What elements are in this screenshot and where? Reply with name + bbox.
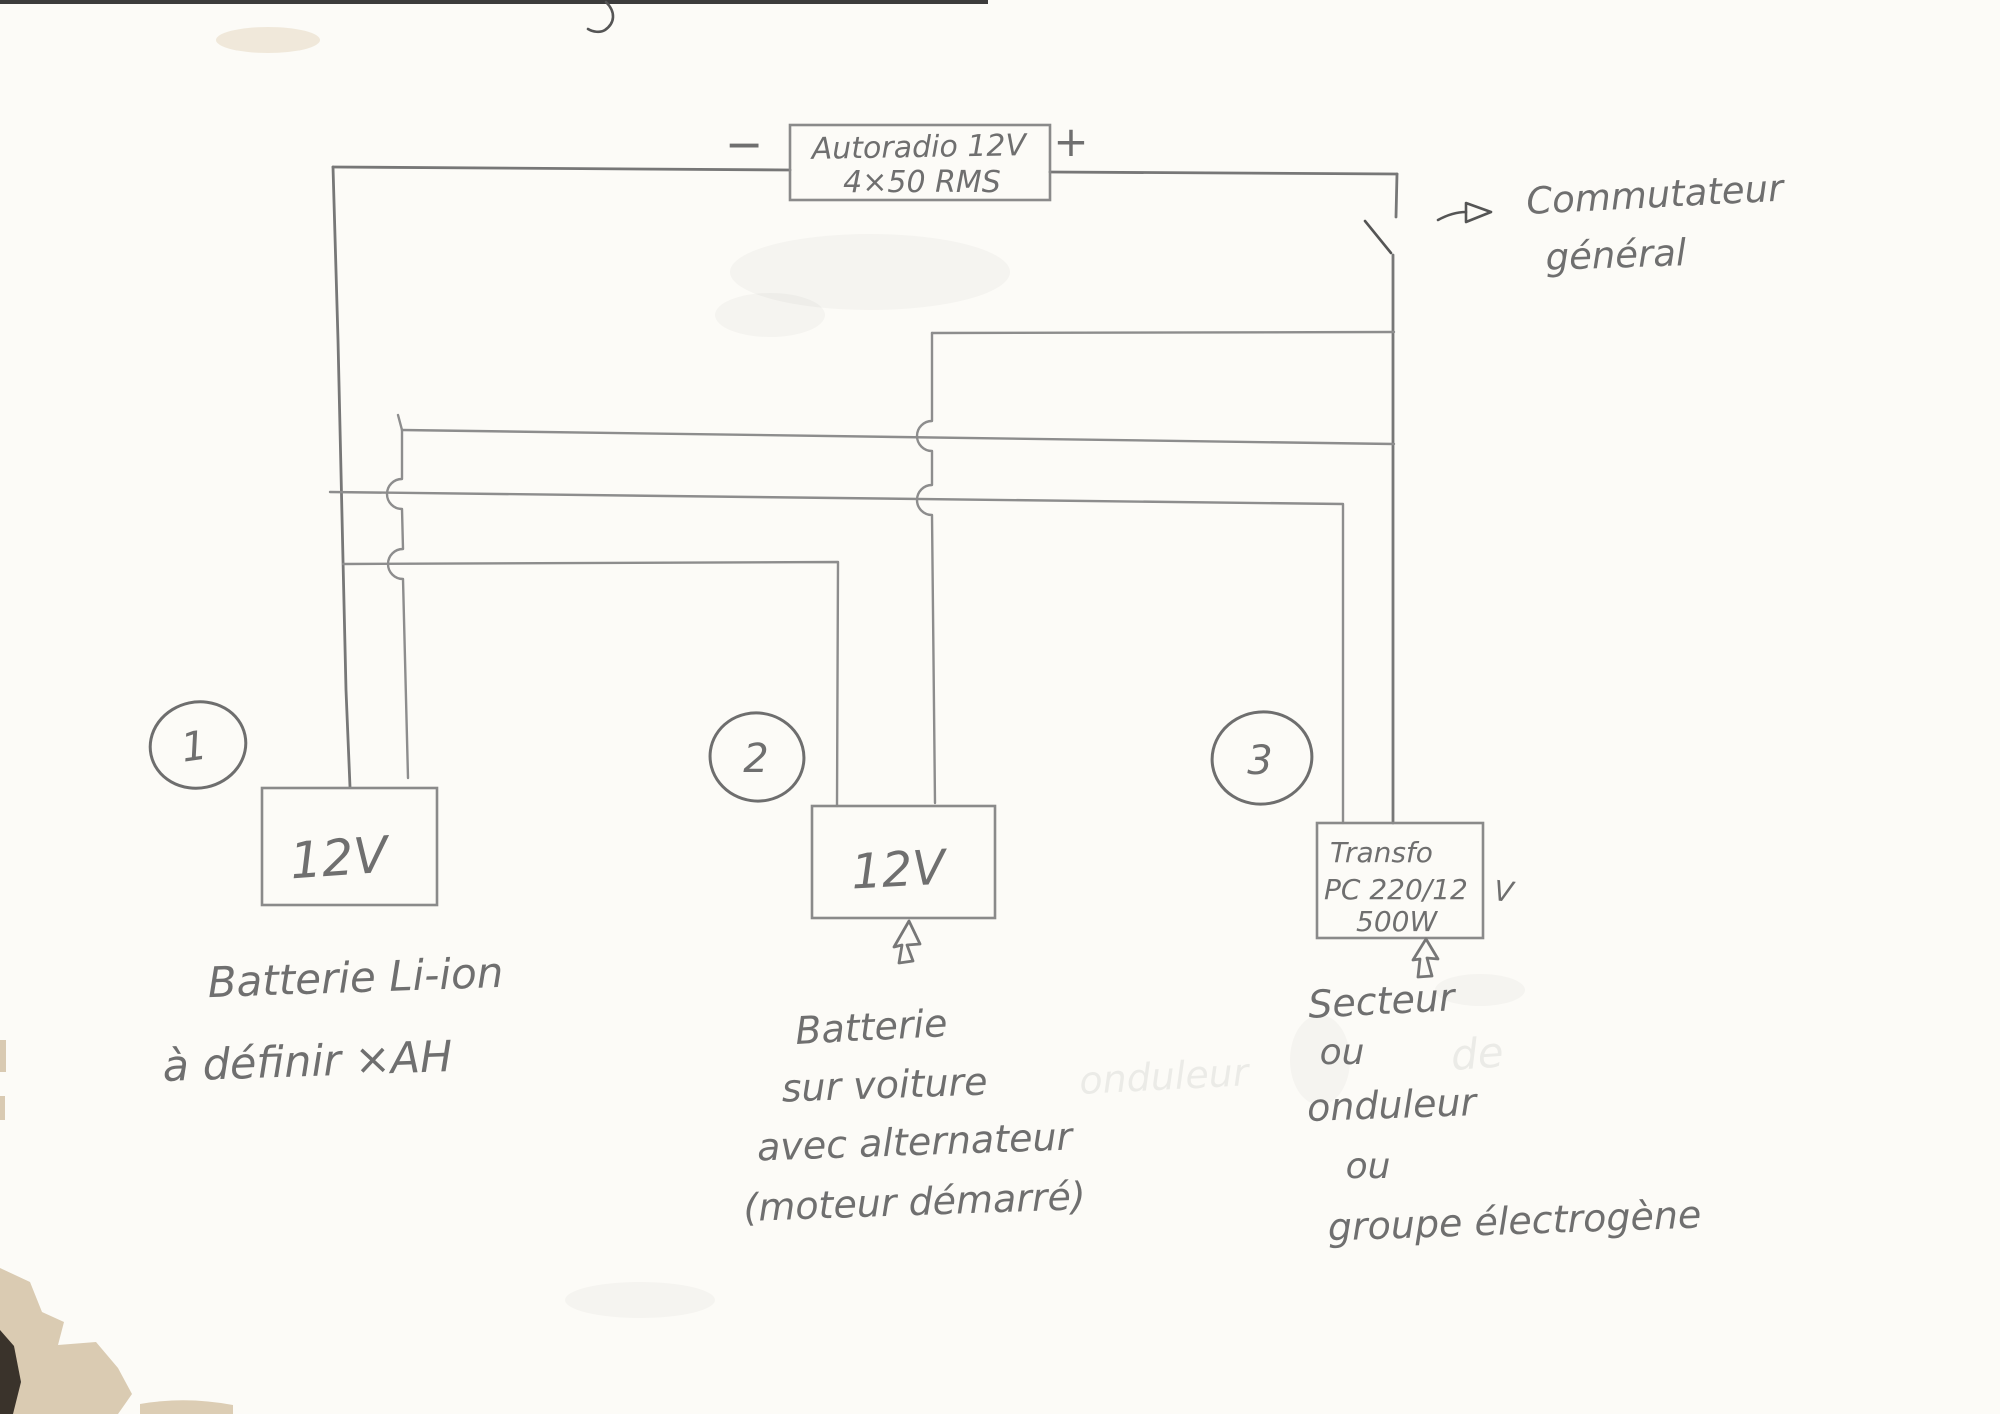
wire-positive-to-source1-with-hops bbox=[387, 430, 408, 778]
source3-caption-line1: Secteur bbox=[1307, 975, 1458, 1027]
switch-upper-stub bbox=[1396, 174, 1397, 217]
positive-terminal-sign: + bbox=[1053, 117, 1088, 166]
paper-stain-edge bbox=[0, 1096, 5, 1120]
erased-ghost-word1: onduleur bbox=[1078, 1050, 1252, 1103]
pencil-smudge bbox=[715, 293, 825, 337]
paper-stain-edge bbox=[0, 1040, 6, 1072]
wiring-diagram: Autoradio 12V 4×50 RMS − + Commutateur g… bbox=[0, 0, 2000, 1414]
scan-edge-artifact bbox=[0, 0, 988, 4]
head-unit-label-line1: Autoradio 12V bbox=[809, 128, 1028, 167]
wire-corner-tick bbox=[398, 415, 402, 430]
switch-label-line1: Commutateur bbox=[1525, 166, 1787, 223]
source3-unit-outside: V bbox=[1492, 874, 1516, 909]
callout-arrow-shaft bbox=[1438, 212, 1466, 220]
source2-caption-line2: sur voiture bbox=[781, 1059, 988, 1110]
pencil-smudge bbox=[565, 1282, 715, 1318]
source2-caption-line1: Batterie bbox=[794, 1001, 948, 1053]
paper-stain-bottom bbox=[140, 1400, 233, 1414]
source2-number: 2 bbox=[743, 736, 768, 782]
wire-positive-crossbar bbox=[932, 332, 1394, 333]
source2-caption-line3: avec alternateur bbox=[756, 1114, 1075, 1169]
wire-negative-vertical bbox=[333, 167, 350, 787]
source1-box-label: 12V bbox=[288, 825, 393, 890]
source2-caption-line4: (moteur démarré) bbox=[743, 1174, 1087, 1230]
callout-arrow-head bbox=[1466, 203, 1491, 222]
source3-number: 3 bbox=[1247, 738, 1272, 784]
source3-box-line3: 500W bbox=[1356, 905, 1438, 938]
erased-ghost-word2: de bbox=[1449, 1027, 1505, 1080]
source3-box-line2: PC 220/12 bbox=[1324, 873, 1468, 906]
wire-positive-top bbox=[1050, 172, 1397, 174]
scanned-paper-sheet: Autoradio 12V 4×50 RMS − + Commutateur g… bbox=[0, 0, 2000, 1414]
source3-caption-line2: ou bbox=[1320, 1032, 1365, 1073]
paper-stain-small bbox=[216, 27, 320, 53]
up-arrow-icon bbox=[894, 921, 920, 963]
pen-stroke-mark bbox=[588, 2, 613, 32]
head-unit-label-line2: 4×50 RMS bbox=[843, 165, 1001, 200]
source3-caption-line3: onduleur bbox=[1306, 1080, 1479, 1130]
source3-caption-line5: groupe électrogène bbox=[1327, 1193, 1702, 1250]
source3-caption-line4: ou bbox=[1346, 1146, 1391, 1187]
wire-negative-top bbox=[333, 167, 790, 170]
source1-caption-line1: Batterie Li-ion bbox=[207, 948, 504, 1007]
up-arrow-icon bbox=[1413, 939, 1438, 977]
source1-number: 1 bbox=[178, 723, 210, 772]
switch-label-line2: général bbox=[1545, 231, 1688, 279]
wire-positive-branch-source1 bbox=[402, 430, 1394, 444]
wire-positive-to-source2-with-hops bbox=[917, 333, 935, 803]
source3-box-line1: Transfo bbox=[1330, 836, 1433, 869]
switch-blade bbox=[1365, 221, 1391, 253]
source2-box-label: 12V bbox=[850, 839, 950, 900]
negative-terminal-sign: − bbox=[725, 117, 764, 171]
source1-caption-line2: à définir ×AH bbox=[162, 1032, 453, 1092]
paper-stain-corner bbox=[0, 1268, 132, 1414]
